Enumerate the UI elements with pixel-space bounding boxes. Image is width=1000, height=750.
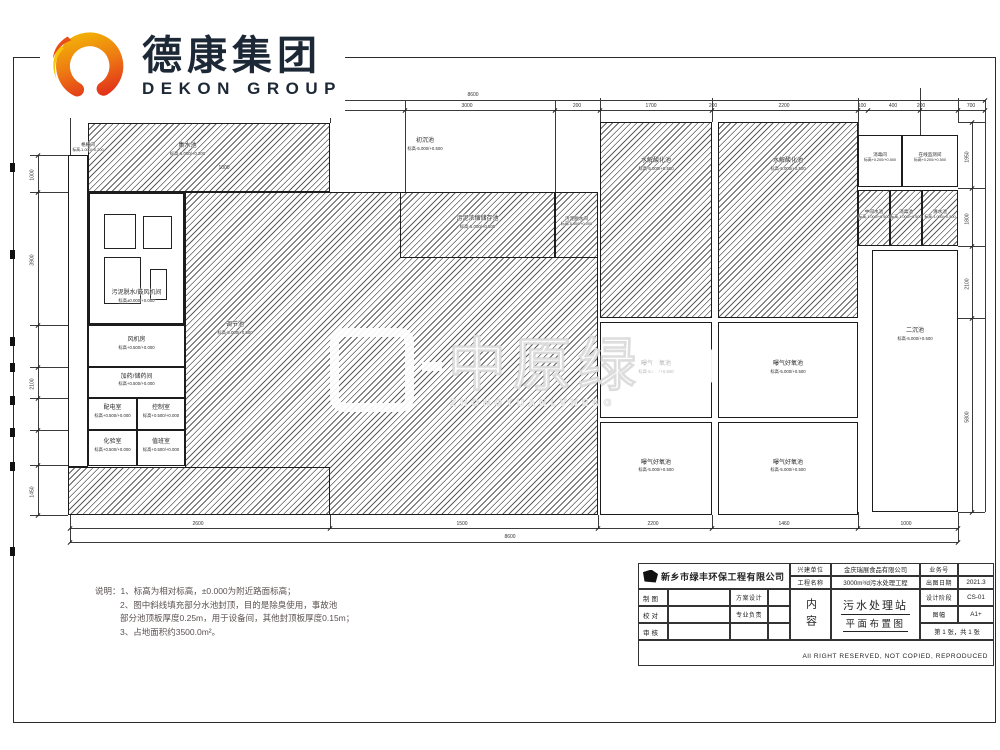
dimension-number: 3000 bbox=[461, 103, 472, 109]
logo-text: 德康集团 DEKON GROUP bbox=[142, 36, 342, 97]
axis-marker bbox=[10, 396, 15, 405]
date-label: 出图日期 bbox=[920, 576, 958, 589]
plan-line bbox=[405, 100, 406, 192]
plan-line bbox=[38, 155, 39, 515]
room-kongzhishi bbox=[137, 398, 185, 430]
project-label: 工程名称 bbox=[790, 576, 831, 589]
size-label: 图幅 bbox=[920, 606, 958, 623]
major-label: 专业负责 bbox=[730, 606, 768, 623]
owner-label: 兴建单位 bbox=[790, 563, 831, 576]
drawing-notes: 说明：1、标高为相对标高，±0.000为附近路面标高； 2、图中斜线填充部分水池… bbox=[95, 585, 425, 639]
company-logo: 德康集团 DEKON GROUP bbox=[40, 14, 345, 118]
drawing-title-line1: 污水处理站 bbox=[841, 597, 910, 615]
plan-line bbox=[70, 528, 958, 529]
draw-label: 制图 bbox=[638, 589, 668, 606]
axis-marker bbox=[10, 250, 15, 259]
content-label: 内容 bbox=[803, 598, 819, 632]
room-haoyang1 bbox=[600, 322, 712, 418]
dimension-number: 1700 bbox=[645, 103, 656, 109]
dimension-number: 400 bbox=[889, 103, 897, 109]
room-name: 初沉池 bbox=[385, 138, 465, 146]
jobno-label: 业务号 bbox=[920, 563, 958, 576]
dimension-number: 2200 bbox=[778, 103, 789, 109]
cad-drawing-page: { "logo": {"cn": "德康集团", "en": "DEKON GR… bbox=[0, 0, 1000, 750]
equipment-rect bbox=[143, 216, 172, 249]
room-qingshuichi bbox=[922, 190, 958, 246]
stage-value: CS-01 bbox=[958, 589, 994, 606]
plan-line bbox=[920, 88, 921, 135]
title-block: 新乡市绿丰环保工程有限公司 兴建单位 金庆瑞展食品有限公司 业务号 工程名称 3… bbox=[638, 563, 994, 666]
note-line-1: 说明：1、标高为相对标高，±0.000为附近路面标高； bbox=[95, 585, 425, 599]
room-huayanshi bbox=[88, 430, 137, 466]
note-line-3: 部分池顶板厚度0.25m，用于设备间，其他封顶板厚度0.15m； bbox=[120, 612, 425, 626]
scheme-label: 方案设计 bbox=[730, 589, 768, 606]
dimension-number: 1500 bbox=[456, 521, 467, 527]
empty-cell bbox=[730, 623, 768, 640]
dimension-number: 1460 bbox=[778, 521, 789, 527]
dimension-number: 5800 bbox=[965, 411, 971, 422]
check-label: 校对 bbox=[638, 606, 668, 623]
dimension-number: 2100 bbox=[965, 278, 971, 289]
dimension-tick bbox=[956, 540, 961, 545]
room-peidianshi bbox=[88, 398, 137, 430]
equipment-rect bbox=[104, 257, 141, 304]
logo-cn-text: 德康集团 bbox=[142, 36, 342, 76]
sheet-value: 第 1 张，共 1 张 bbox=[920, 623, 994, 640]
design-company-name: 新乡市绿丰环保工程有限公司 bbox=[661, 570, 785, 583]
room-fengjifang bbox=[88, 325, 185, 367]
dimension-number: 2200 bbox=[647, 521, 658, 527]
room-geshan-strip bbox=[68, 155, 88, 467]
logo-en-text: DEKON GROUP bbox=[142, 80, 342, 97]
equipment-rect bbox=[150, 269, 167, 300]
room-haoyang2 bbox=[718, 322, 858, 418]
scheme-value bbox=[768, 589, 790, 606]
plan-line bbox=[70, 542, 958, 543]
axis-marker bbox=[10, 547, 15, 556]
copyright-notice: All RIGHT RESERVED, NOT COPIED, REPRODUC… bbox=[638, 640, 994, 666]
empty-cell bbox=[768, 623, 790, 640]
dimension-number: 200 bbox=[709, 103, 717, 109]
plan-line bbox=[330, 110, 985, 111]
dimension-number: 3900 bbox=[30, 254, 36, 265]
room-elevation: 标高-5.000/+0.500 bbox=[385, 146, 465, 151]
room-haoyang4 bbox=[718, 422, 858, 515]
project-value: 3000m³/d污水处理工程 bbox=[831, 576, 920, 589]
design-company-logo-icon bbox=[643, 570, 658, 583]
dimension-number: 200 bbox=[917, 103, 925, 109]
dimension-number: 1950 bbox=[965, 151, 971, 162]
axis-marker bbox=[10, 363, 15, 372]
plan-line bbox=[985, 100, 986, 512]
major-value bbox=[768, 606, 790, 623]
room-xiaodujian bbox=[858, 135, 902, 187]
drawing-title-line2: 平面布置图 bbox=[843, 615, 907, 632]
dimension-number: 1000 bbox=[218, 165, 229, 171]
room-tuoshuijian bbox=[555, 192, 598, 258]
audit-value bbox=[668, 623, 730, 640]
room-shuijie1 bbox=[600, 122, 712, 318]
room-nongsuochi bbox=[400, 192, 555, 258]
room-haoyang3 bbox=[600, 422, 712, 515]
note-line-4: 3、占地面积约3500.0m²。 bbox=[120, 626, 425, 640]
axis-marker bbox=[10, 462, 15, 471]
dimension-number: 8600 bbox=[467, 92, 478, 98]
room-xiaoduchi bbox=[890, 190, 922, 246]
room-zhibanshi bbox=[137, 430, 185, 466]
room-shuijie2 bbox=[718, 122, 858, 318]
room-jishuichi bbox=[88, 123, 330, 192]
dimension-number: 200 bbox=[573, 103, 581, 109]
note-line-2: 2、图中斜线填充部分水池封顶，目的是除臭使用，事故池 bbox=[120, 599, 425, 613]
axis-marker bbox=[10, 337, 15, 346]
room-erchenchi bbox=[872, 250, 958, 512]
audit-label: 审核 bbox=[638, 623, 668, 640]
dimension-number: 1000 bbox=[30, 169, 36, 180]
check-value bbox=[668, 606, 730, 623]
dimension-number: 1800 bbox=[965, 213, 971, 224]
room-zaixianjiance bbox=[902, 135, 958, 187]
design-company-cell: 新乡市绿丰环保工程有限公司 bbox=[638, 563, 790, 589]
dimension-number: 100 bbox=[858, 103, 866, 109]
drawing-title-cell: 污水处理站 平面布置图 bbox=[831, 589, 920, 640]
axis-marker bbox=[10, 428, 15, 437]
dimension-number: 1000 bbox=[900, 521, 911, 527]
room-label-chuchenchi: 初沉池标高-5.000/+0.500 bbox=[385, 138, 465, 151]
equipment-rect bbox=[104, 214, 136, 249]
plan-line bbox=[555, 100, 556, 192]
dimension-number: 2600 bbox=[192, 521, 203, 527]
dimension-number: 1450 bbox=[30, 486, 36, 497]
draw-value bbox=[668, 589, 730, 606]
stage-label: 设计阶段 bbox=[920, 589, 958, 606]
dimension-number: 700 bbox=[967, 103, 975, 109]
dimension-number: 8600 bbox=[504, 534, 515, 540]
content-label-cell: 内容 bbox=[790, 589, 831, 640]
date-value: 2021.3 bbox=[958, 576, 994, 589]
jobno-value bbox=[958, 563, 994, 576]
room-jiayao bbox=[88, 367, 185, 398]
axis-marker bbox=[10, 163, 15, 172]
dimension-number: 2100 bbox=[30, 378, 36, 389]
owner-value: 金庆瑞展食品有限公司 bbox=[831, 563, 920, 576]
room-zhongjianshuichi bbox=[858, 190, 890, 246]
room-hatch-strip-bottom bbox=[68, 467, 330, 515]
dekon-ring-icon bbox=[40, 20, 132, 112]
size-value: A1+ bbox=[958, 606, 994, 623]
